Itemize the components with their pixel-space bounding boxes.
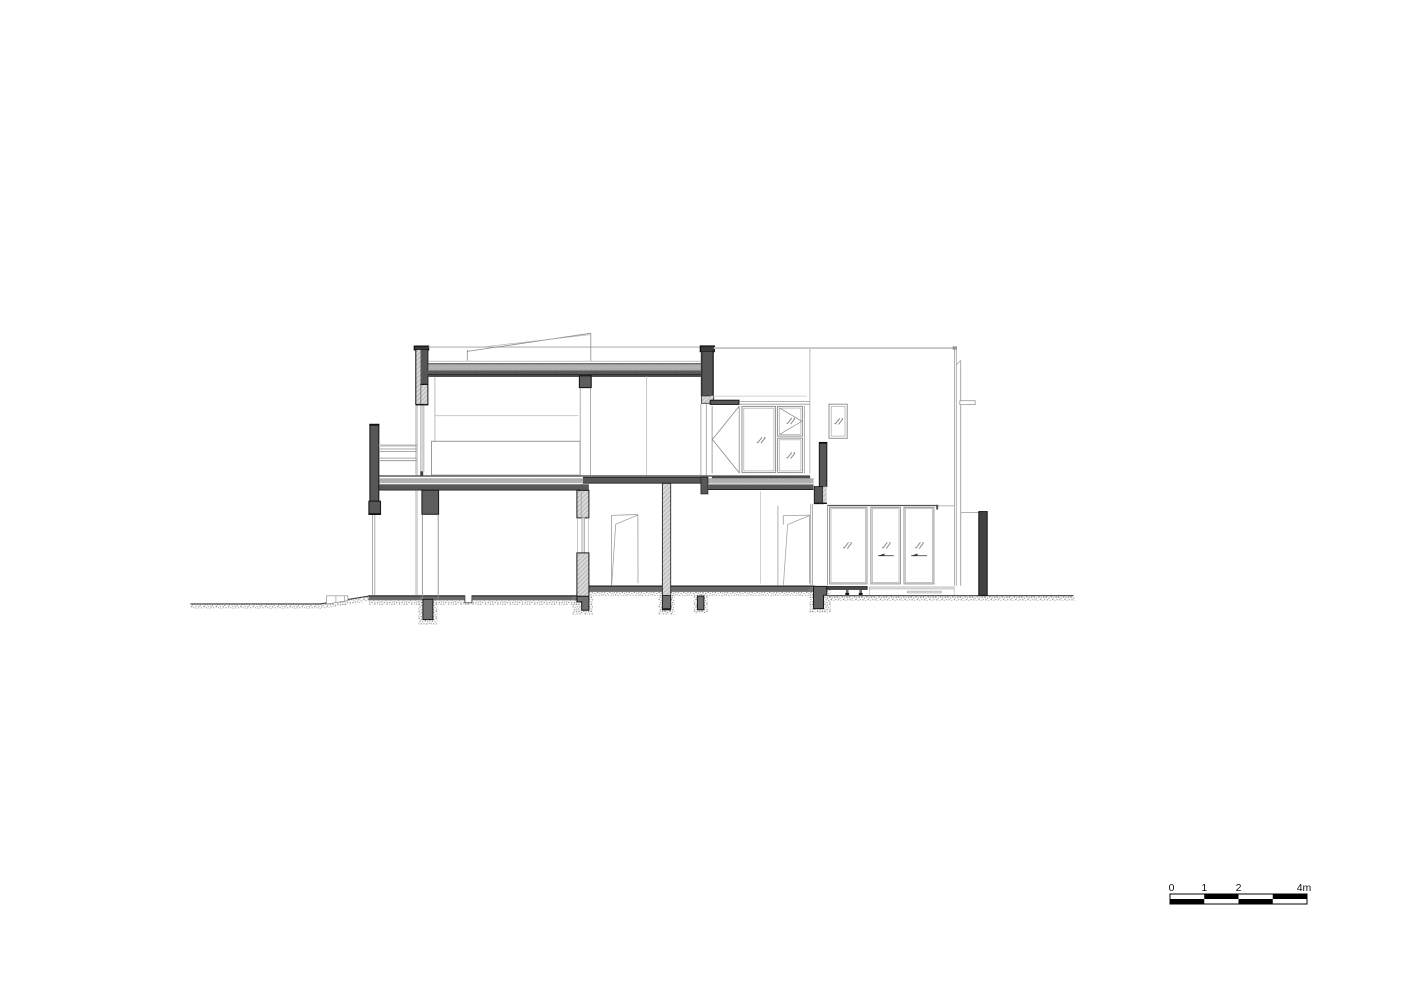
svg-text:4m: 4m (1297, 882, 1312, 894)
svg-text:0: 0 (1169, 882, 1175, 894)
svg-text:2: 2 (1236, 882, 1242, 894)
svg-text:1: 1 (1201, 882, 1207, 894)
